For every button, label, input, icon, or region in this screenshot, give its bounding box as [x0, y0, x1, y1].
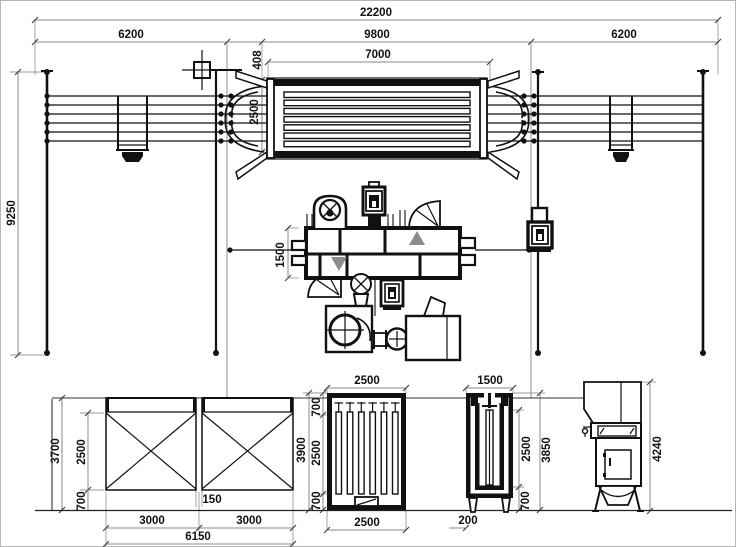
- dim-label: 9800: [364, 29, 390, 41]
- braced-tank-1: [106, 398, 196, 490]
- quench-vessel: [466, 393, 513, 512]
- electrode-bath: [327, 393, 406, 510]
- dim-label: 4240: [652, 436, 664, 462]
- dim-label: 2500: [311, 440, 323, 466]
- dim-label: 6200: [118, 29, 144, 41]
- dim-label: 700: [311, 491, 323, 510]
- dim-tank-gap: 150: [202, 494, 221, 506]
- aux-motor-icon: [381, 280, 403, 310]
- filter-hood: [584, 382, 641, 423]
- centrifugal-blower-icon: [326, 306, 372, 352]
- dim-label: 7000: [365, 49, 391, 61]
- dim-label: 700: [76, 491, 88, 510]
- dim-label: 2500: [521, 436, 533, 462]
- dim-label: 3000: [139, 515, 165, 527]
- dim-label: 700: [311, 397, 323, 416]
- dim-label: 1500: [477, 375, 503, 387]
- top-fan-icon: [314, 196, 346, 228]
- dim-label: 22200: [360, 7, 392, 19]
- dim-label: 9250: [6, 200, 18, 226]
- dim-label: 2500: [249, 99, 261, 125]
- dim-label: 150: [202, 494, 221, 506]
- dim-tank-leg: 700: [76, 490, 88, 511]
- engineering-drawing-page: 22200 6200 9800 6200 7000 408: [0, 0, 736, 547]
- dim-label: 200: [458, 515, 477, 527]
- furnace-strands: [284, 92, 470, 147]
- dim-label: 6150: [185, 531, 211, 543]
- dim-label: 3000: [236, 515, 262, 527]
- engineering-drawing: 22200 6200 9800 6200 7000 408: [0, 0, 736, 547]
- dim-label: 2500: [354, 517, 380, 529]
- filter-band: [591, 423, 641, 438]
- braced-tank-2: [202, 398, 293, 490]
- dim-label: 3900: [296, 437, 308, 463]
- filter-cabinet: [596, 438, 641, 486]
- dim-label: 6200: [611, 29, 637, 41]
- dim-label: 2500: [354, 375, 380, 387]
- dim-label: 700: [520, 491, 532, 510]
- dim-label: 408: [252, 50, 264, 70]
- dim-label: 3850: [541, 437, 553, 463]
- dim-label: 1500: [275, 242, 287, 268]
- dim-label: 2500: [76, 439, 88, 465]
